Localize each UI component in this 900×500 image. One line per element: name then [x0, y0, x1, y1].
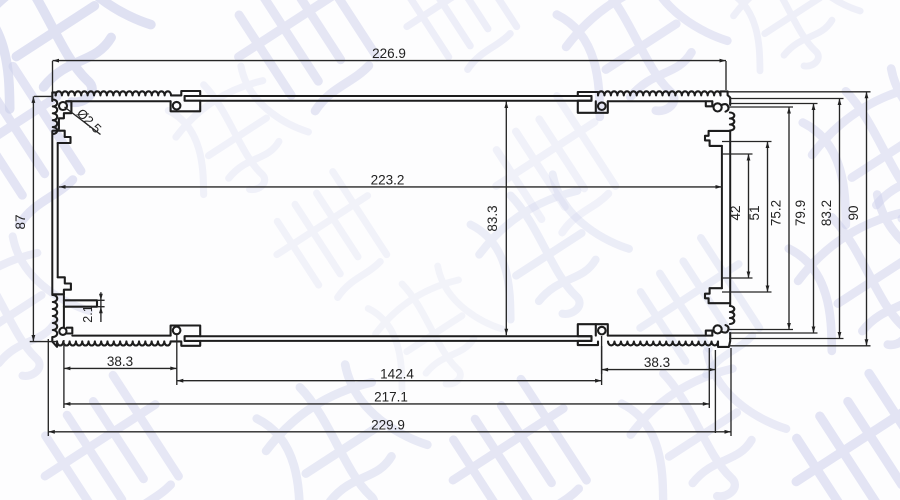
svg-text:229.9: 229.9	[371, 417, 405, 432]
svg-text:217.1: 217.1	[374, 390, 408, 405]
svg-text:87: 87	[13, 214, 28, 229]
svg-text:Ø2.5: Ø2.5	[74, 106, 105, 137]
svg-text:38.3: 38.3	[644, 355, 670, 370]
svg-text:90: 90	[846, 205, 861, 220]
svg-text:51: 51	[747, 205, 762, 220]
svg-text:38.3: 38.3	[107, 354, 133, 369]
svg-text:42: 42	[728, 205, 743, 220]
svg-text:226.9: 226.9	[372, 46, 406, 61]
svg-text:2.1: 2.1	[81, 305, 95, 322]
svg-text:79.9: 79.9	[793, 200, 808, 226]
svg-text:83.3: 83.3	[485, 205, 500, 231]
svg-text:223.2: 223.2	[371, 173, 405, 188]
svg-text:75.2: 75.2	[769, 200, 784, 226]
svg-text:142.4: 142.4	[380, 366, 414, 381]
svg-text:83.2: 83.2	[819, 200, 834, 226]
